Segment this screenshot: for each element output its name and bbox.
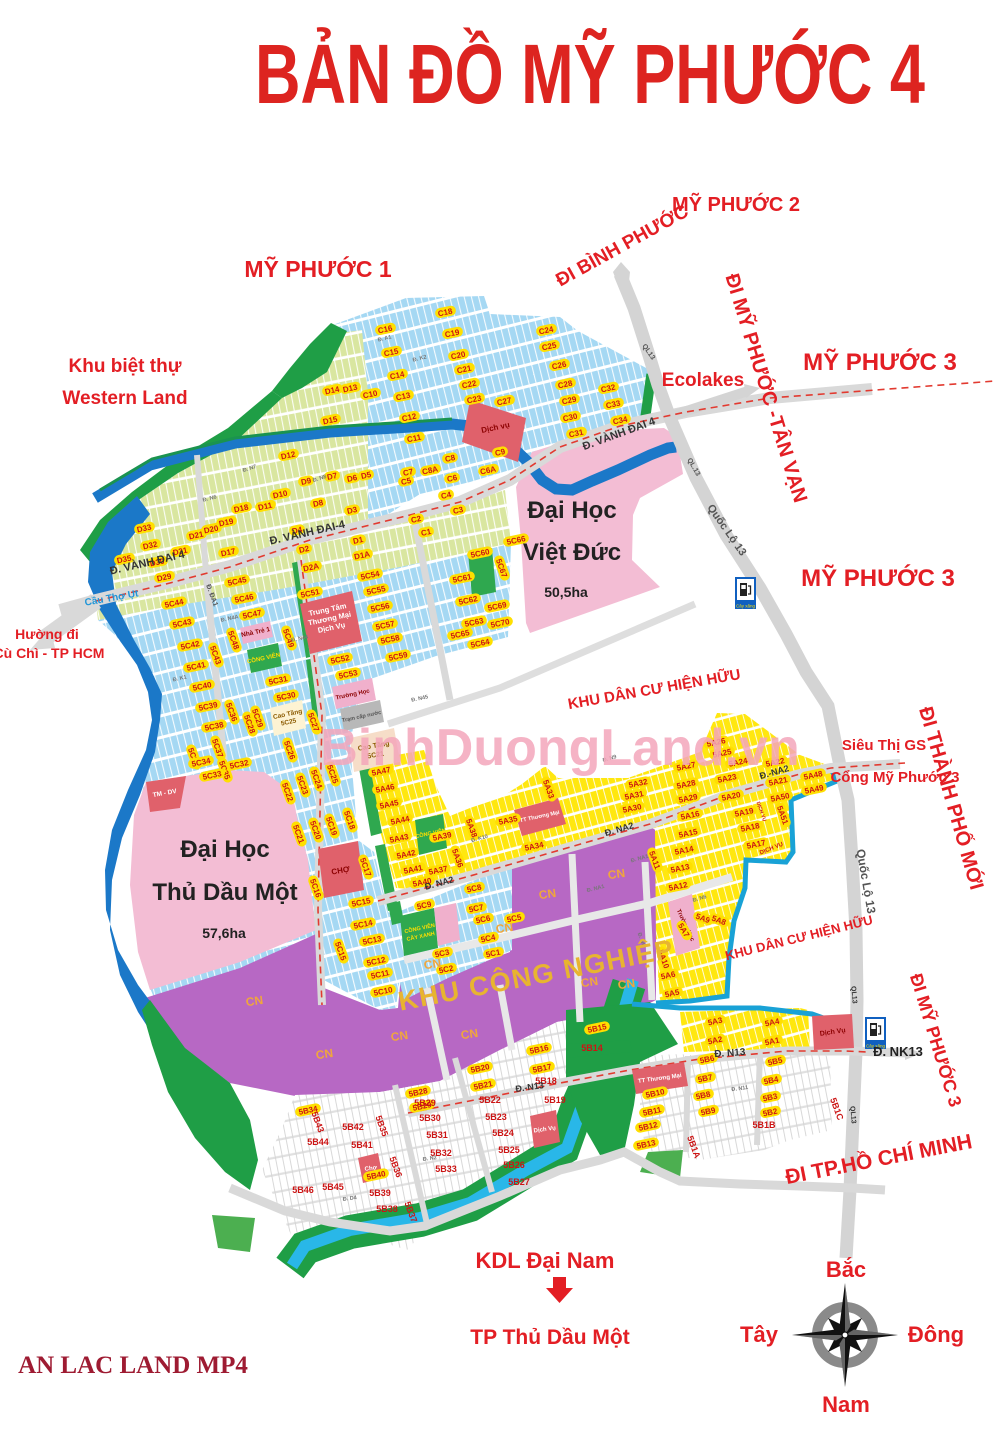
svg-text:CN: CN — [423, 956, 442, 972]
svg-text:50,5ha: 50,5ha — [544, 584, 588, 600]
svg-text:5B14: 5B14 — [581, 1043, 603, 1053]
svg-text:Ecolakes: Ecolakes — [662, 370, 744, 391]
svg-text:5B1B: 5B1B — [752, 1120, 776, 1130]
svg-text:Đ. NK13: Đ. NK13 — [873, 1044, 923, 1059]
svg-text:Việt Đức: Việt Đức — [523, 539, 621, 566]
svg-text:AN LAC LAND MP4: AN LAC LAND MP4 — [18, 1352, 248, 1379]
svg-text:5B42: 5B42 — [342, 1122, 364, 1132]
svg-text:5B38: 5B38 — [376, 1204, 398, 1214]
svg-text:MỸ PHƯỚC 3: MỸ PHƯỚC 3 — [803, 348, 957, 376]
svg-text:5B33: 5B33 — [435, 1164, 457, 1174]
svg-text:CN: CN — [538, 886, 557, 902]
svg-text:Đông: Đông — [908, 1322, 964, 1347]
svg-text:57,6ha: 57,6ha — [202, 925, 246, 941]
svg-text:CN: CN — [617, 976, 636, 992]
svg-text:Thủ Dầu Một: Thủ Dầu Một — [152, 879, 297, 906]
svg-text:Tây: Tây — [740, 1322, 779, 1347]
svg-text:CN: CN — [460, 1026, 479, 1042]
svg-text:Cây xăng: Cây xăng — [736, 604, 756, 609]
svg-text:5B41: 5B41 — [351, 1140, 373, 1150]
svg-text:5B19: 5B19 — [544, 1095, 566, 1105]
svg-text:CN: CN — [495, 920, 514, 936]
svg-text:Đ. N13: Đ. N13 — [714, 1047, 746, 1060]
svg-text:MỸ PHƯỚC 3: MỸ PHƯỚC 3 — [801, 564, 955, 592]
svg-text:Siêu Thị GS: Siêu Thị GS — [842, 737, 926, 754]
svg-text:5B22: 5B22 — [479, 1095, 501, 1105]
svg-text:5B39: 5B39 — [369, 1188, 391, 1198]
svg-text:5B24: 5B24 — [492, 1128, 514, 1138]
svg-text:BinhDuongLand.vn: BinhDuongLand.vn — [320, 719, 799, 777]
svg-text:Hường đi: Hường đi — [15, 626, 79, 642]
svg-text:5B45: 5B45 — [322, 1182, 344, 1192]
svg-text:5B46: 5B46 — [292, 1185, 314, 1195]
svg-text:5B27: 5B27 — [508, 1177, 530, 1187]
svg-text:Đại Học: Đại Học — [180, 836, 269, 863]
svg-text:CN: CN — [245, 993, 264, 1009]
svg-text:Nam: Nam — [822, 1392, 870, 1417]
svg-text:5B29: 5B29 — [414, 1098, 436, 1108]
svg-text:BẢN ĐỒ MỸ PHƯỚC 4: BẢN ĐỒ MỸ PHƯỚC 4 — [255, 27, 925, 121]
svg-text:TP Thủ Dầu Một: TP Thủ Dầu Một — [470, 1326, 629, 1349]
svg-text:5B30: 5B30 — [419, 1113, 441, 1123]
svg-text:5B23: 5B23 — [485, 1112, 507, 1122]
svg-text:Bắc: Bắc — [826, 1257, 866, 1282]
svg-text:MỸ PHƯỚC 2: MỸ PHƯỚC 2 — [672, 192, 800, 216]
svg-text:CN: CN — [315, 1046, 334, 1062]
svg-text:MỸ PHƯỚC 1: MỸ PHƯỚC 1 — [244, 255, 392, 282]
svg-text:Khu biệt thự: Khu biệt thự — [69, 356, 182, 377]
svg-text:5B25: 5B25 — [498, 1145, 520, 1155]
svg-text:5B31: 5B31 — [426, 1130, 448, 1140]
svg-text:5B26: 5B26 — [503, 1160, 525, 1170]
svg-text:CN: CN — [607, 866, 626, 882]
svg-text:5B44: 5B44 — [307, 1137, 329, 1147]
svg-text:Cù Chì - TP HCM: Cù Chì - TP HCM — [0, 645, 104, 661]
svg-text:CN: CN — [390, 1028, 409, 1044]
svg-text:Western Land: Western Land — [62, 388, 187, 409]
svg-text:Đại Học: Đại Học — [527, 497, 616, 524]
svg-text:KDL Đại Nam: KDL Đại Nam — [476, 1248, 615, 1273]
